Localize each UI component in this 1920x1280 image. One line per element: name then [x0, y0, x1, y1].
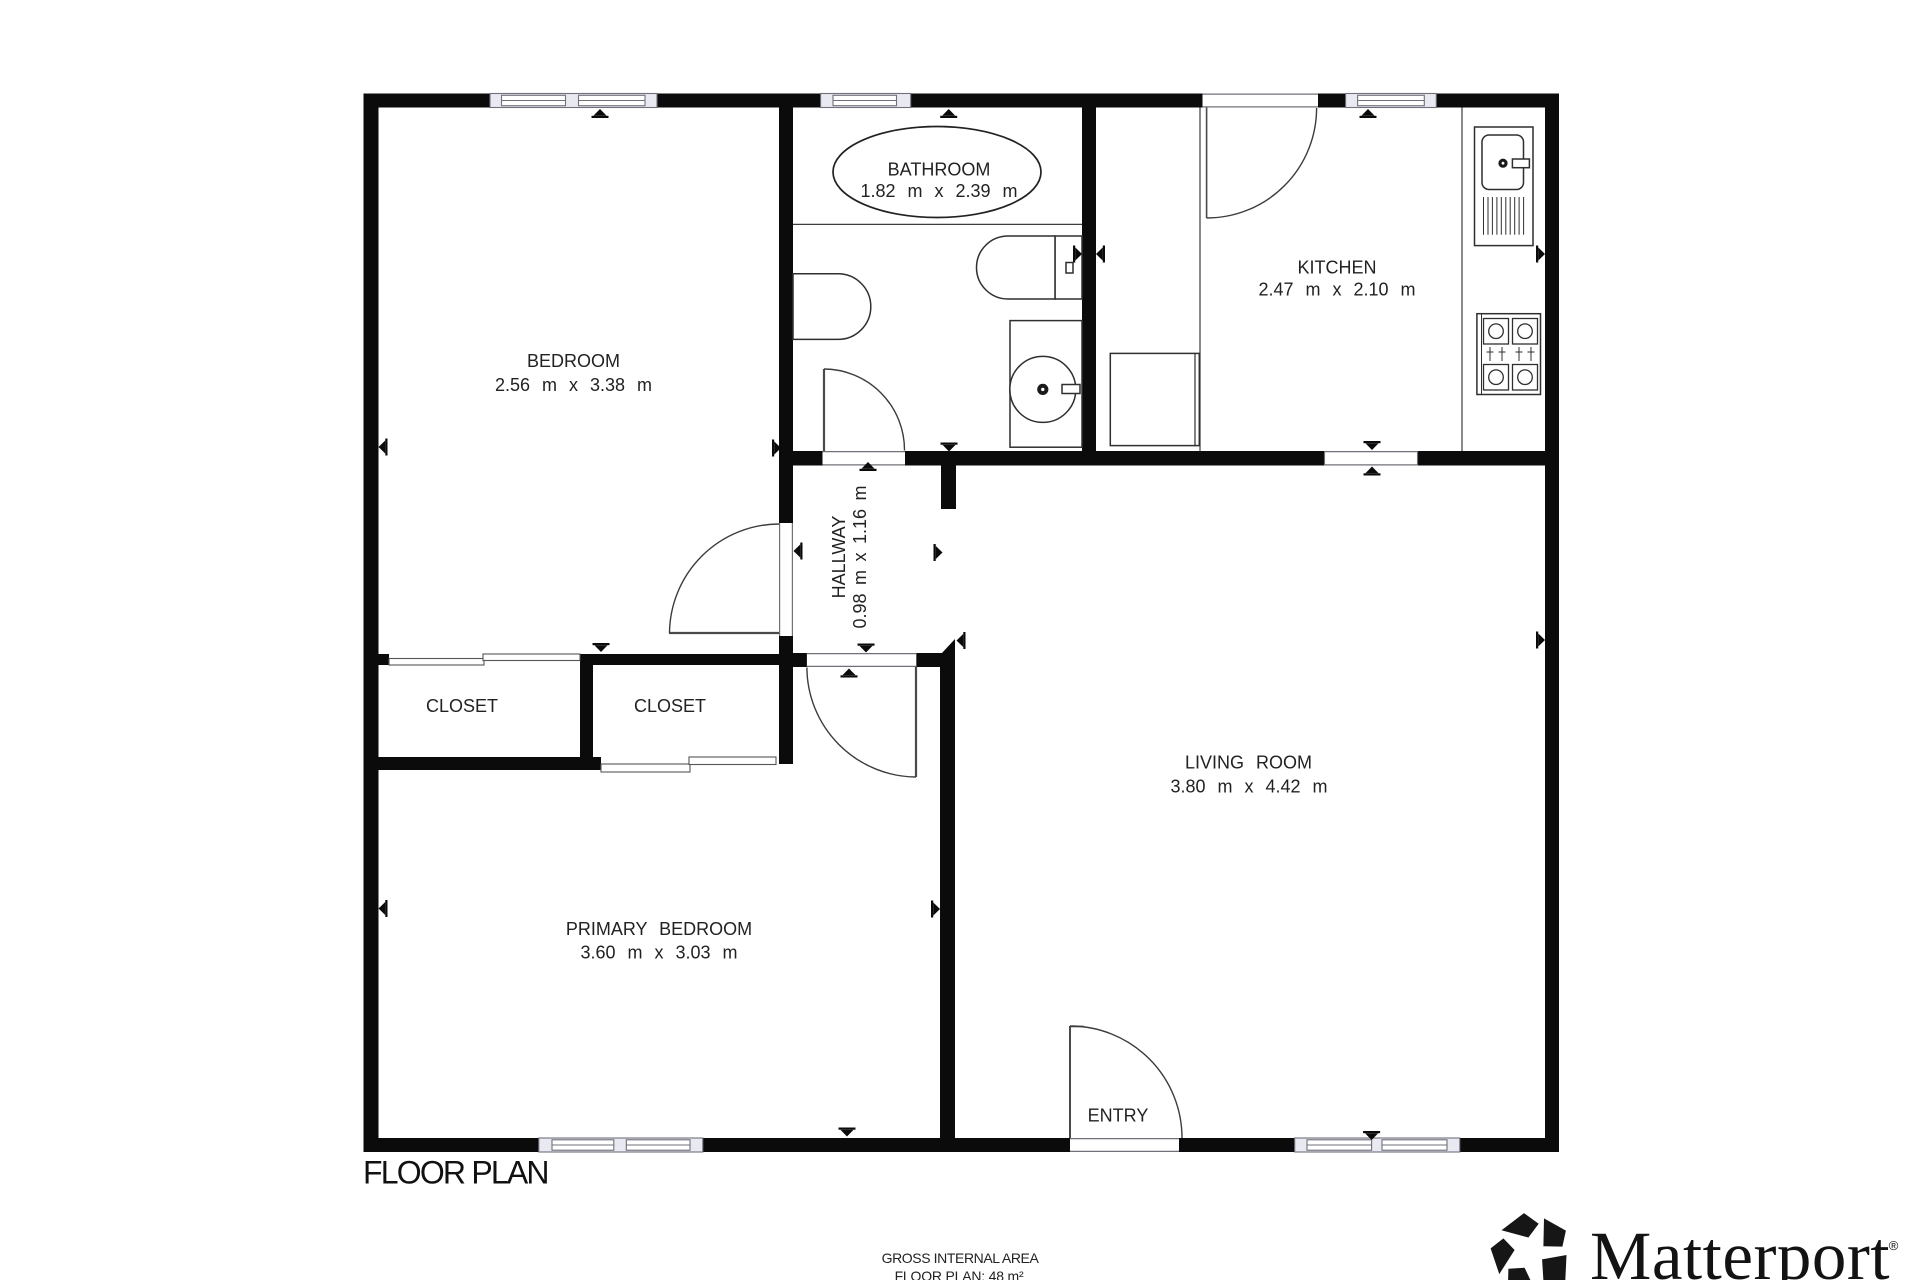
svg-text:CLOSET: CLOSET [634, 696, 706, 716]
svg-text:FLOOR PLAN: 48 m²: FLOOR PLAN: 48 m² [895, 1268, 1024, 1280]
svg-text:LIVING ROOM: LIVING ROOM [1185, 753, 1312, 773]
svg-text:ENTRY: ENTRY [1088, 1106, 1149, 1126]
svg-text:1.82 m x 2.39 m: 1.82 m x 2.39 m [860, 181, 1017, 201]
svg-text:PRIMARY BEDROOM: PRIMARY BEDROOM [566, 919, 752, 939]
svg-text:KITCHEN: KITCHEN [1297, 258, 1376, 278]
svg-text:3.60 m x 3.03 m: 3.60 m x 3.03 m [580, 943, 737, 963]
svg-text:CLOSET: CLOSET [426, 696, 498, 716]
svg-text:BEDROOM: BEDROOM [527, 351, 620, 371]
svg-text:2.56 m x 3.38 m: 2.56 m x 3.38 m [495, 375, 652, 395]
svg-text:HALLWAY: HALLWAY [829, 516, 849, 599]
svg-text:2.47 m x 2.10 m: 2.47 m x 2.10 m [1258, 280, 1415, 300]
svg-text:®: ® [1889, 1238, 1899, 1253]
svg-text:FLOOR PLAN: FLOOR PLAN [363, 1155, 548, 1191]
svg-text:BATHROOM: BATHROOM [888, 160, 991, 180]
svg-text:GROSS INTERNAL AREA: GROSS INTERNAL AREA [882, 1250, 1040, 1266]
svg-text:0.98 m x 1.16 m: 0.98 m x 1.16 m [850, 485, 870, 628]
svg-text:Matterport: Matterport [1590, 1218, 1890, 1280]
svg-text:3.80 m x 4.42 m: 3.80 m x 4.42 m [1170, 777, 1327, 797]
